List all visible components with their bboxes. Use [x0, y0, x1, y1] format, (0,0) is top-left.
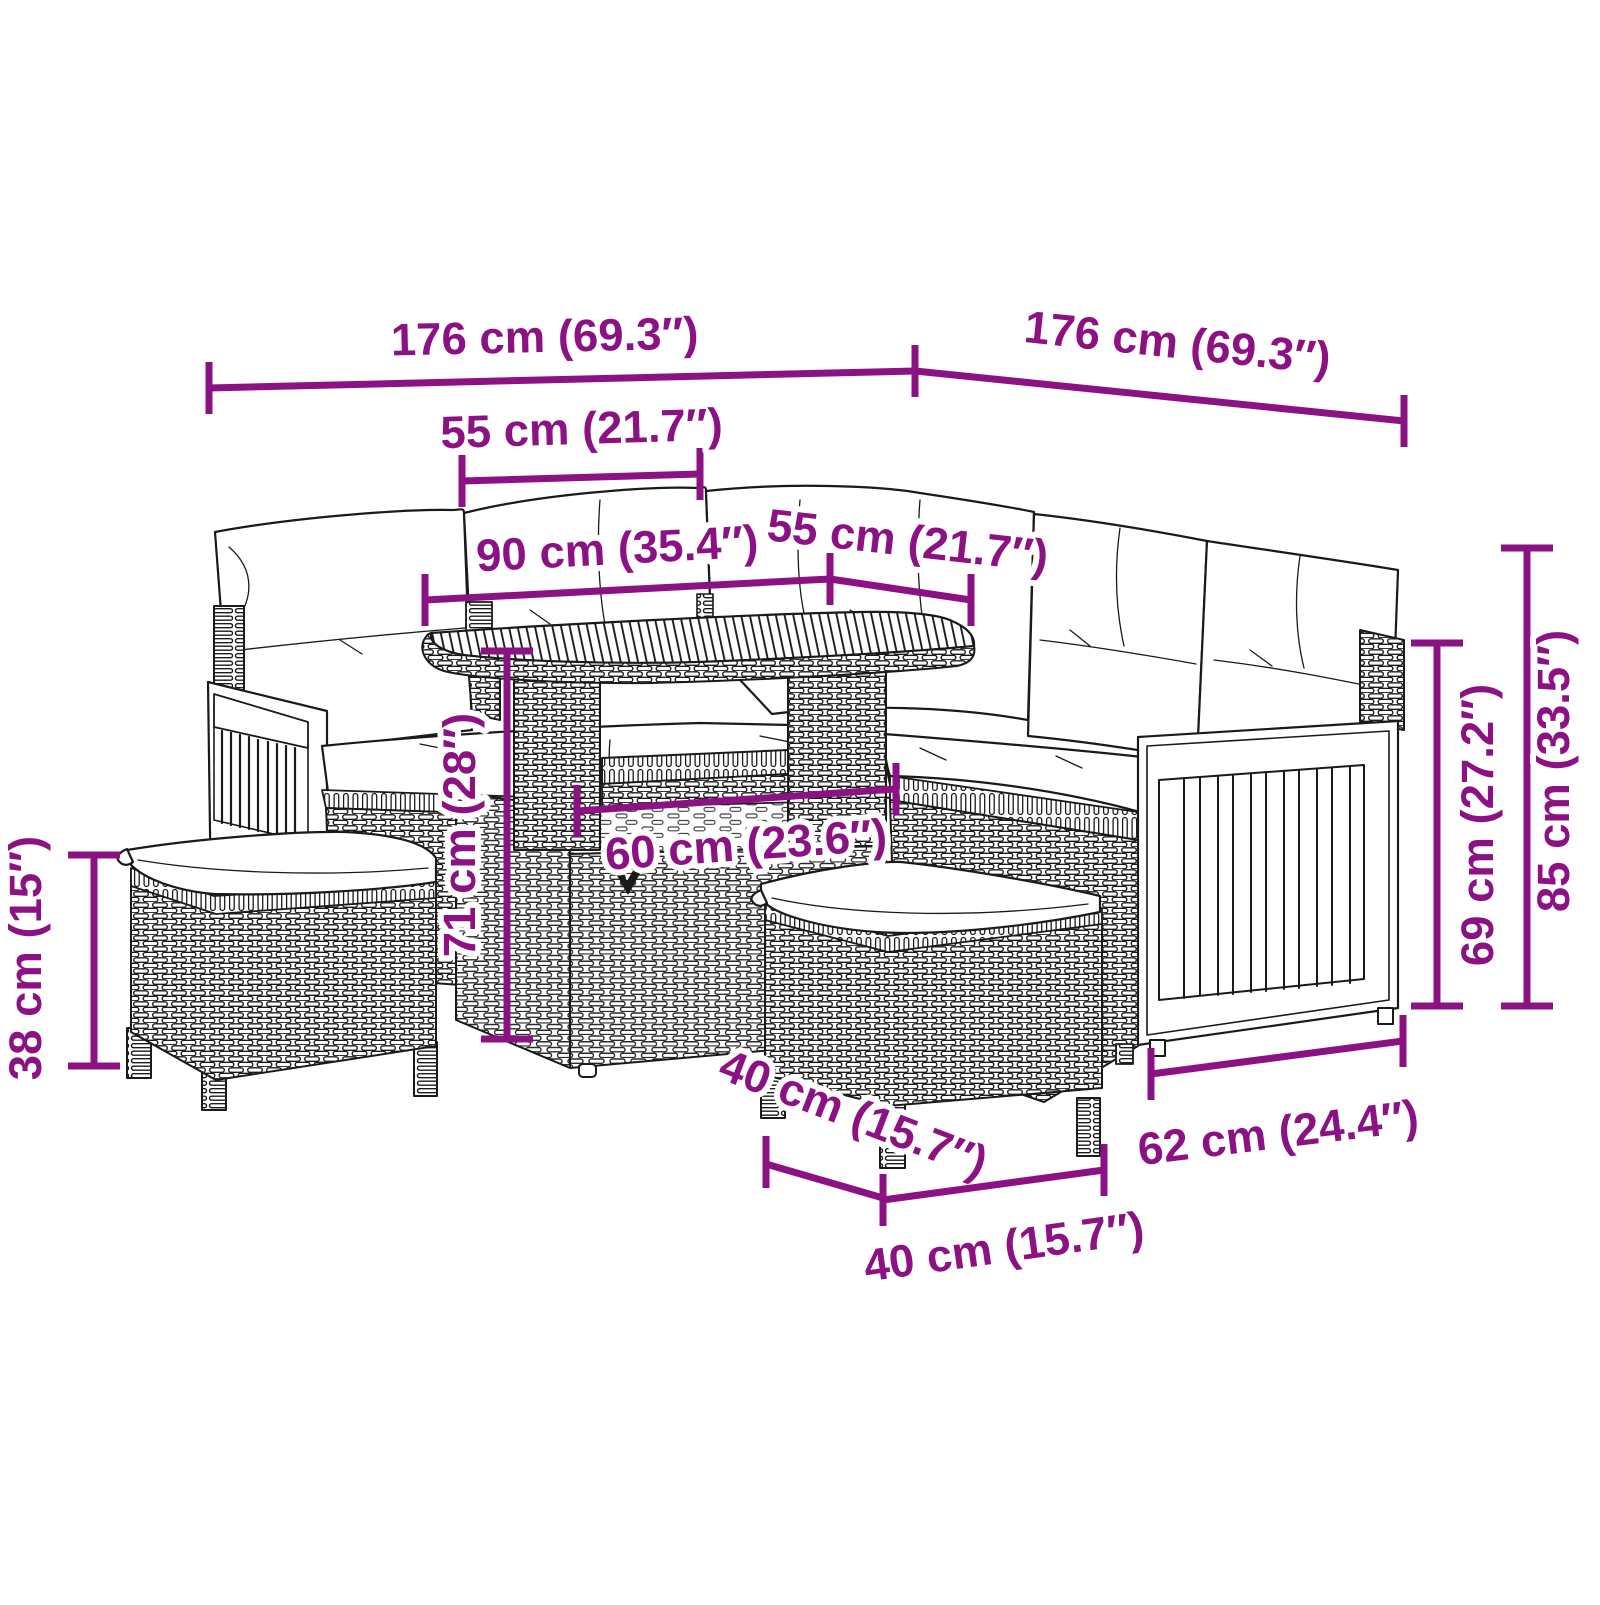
svg-text:38 cm (15″): 38 cm (15″): [0, 836, 51, 1080]
svg-text:69 cm (27.2″): 69 cm (27.2″): [1452, 684, 1503, 966]
svg-text:85 cm (33.5″): 85 cm (33.5″): [1528, 630, 1579, 912]
svg-text:176 cm (69.3″): 176 cm (69.3″): [390, 308, 699, 366]
svg-text:71 cm (28″): 71 cm (28″): [434, 713, 485, 957]
svg-text:55 cm (21.7″): 55 cm (21.7″): [440, 399, 724, 458]
